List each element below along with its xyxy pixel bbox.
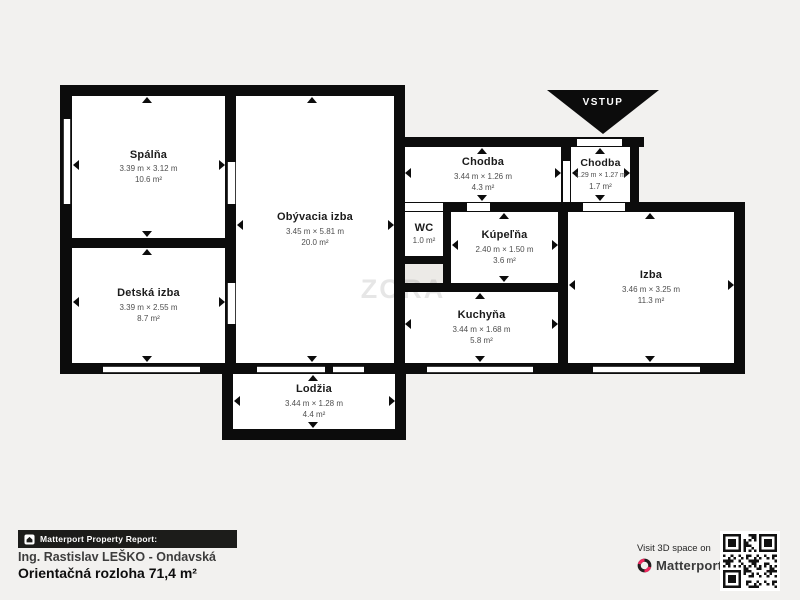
room-dimensions: 3.46 m × 3.25 m <box>622 285 680 295</box>
wall-segment <box>558 202 568 374</box>
wall-segment <box>225 85 236 374</box>
room-area: 1.0 m² <box>413 236 436 246</box>
measure-arrow <box>388 220 394 230</box>
measure-arrow <box>475 293 485 299</box>
measure-arrow <box>234 396 240 406</box>
agent-name: Ing. Rastislav LEŠKO - Ondavská <box>18 550 216 564</box>
room-wc: WC1.0 m² <box>405 212 443 256</box>
measure-arrow <box>477 195 487 201</box>
wall-segment <box>734 202 745 374</box>
measure-arrow <box>595 148 605 154</box>
room-name: Chodba <box>575 157 626 170</box>
measure-arrow <box>219 297 225 307</box>
room-chodba-2: Chodba1.29 m × 1.27 m1.7 m² <box>571 147 630 202</box>
entrance-arrow: VSTUP <box>547 90 659 134</box>
window <box>333 366 364 373</box>
room-area: 11.3 m² <box>622 296 680 306</box>
measure-arrow <box>477 148 487 154</box>
room-dimensions: 3.44 m × 1.26 m <box>454 172 512 182</box>
measure-arrow <box>307 356 317 362</box>
matterport-report-bar: Matterport Property Report: <box>18 530 237 548</box>
measure-arrow <box>499 213 509 219</box>
total-area: Orientačná rozloha 71,4 m² <box>18 565 197 581</box>
door-opening-entrance <box>577 139 622 146</box>
room-name: Detská izba <box>117 287 180 301</box>
house-icon <box>24 534 35 545</box>
room-name: Lodžia <box>285 383 343 397</box>
window <box>427 366 533 373</box>
wall-segment <box>394 283 568 292</box>
wall-segment <box>443 202 451 292</box>
room-name: WC <box>413 222 436 236</box>
wall-segment <box>60 238 236 248</box>
room-dimensions: 3.45 m × 5.81 m <box>277 227 353 237</box>
measure-arrow <box>552 240 558 250</box>
room-dimensions: 1.29 m × 1.27 m <box>575 172 626 181</box>
measure-arrow <box>499 276 509 282</box>
matterport-wordmark: Matterport <box>656 558 722 573</box>
visit-3d-block: Visit 3D space on Matterport <box>637 543 722 573</box>
measure-arrow <box>452 240 458 250</box>
room-izba: Izba3.46 m × 3.25 m11.3 m² <box>568 212 734 363</box>
door-opening <box>405 203 443 211</box>
room-name: Spálňa <box>119 149 177 163</box>
room-dimensions: 3.44 m × 1.68 m <box>452 325 510 335</box>
measure-arrow <box>645 213 655 219</box>
room-name: Kuchyňa <box>452 309 510 323</box>
wall-segment <box>222 363 233 440</box>
window <box>227 283 236 324</box>
qr-code <box>720 531 780 591</box>
window <box>103 366 200 373</box>
measure-arrow <box>237 220 243 230</box>
measure-arrow <box>142 231 152 237</box>
room-area: 20.0 m² <box>277 238 353 248</box>
floor-plan-page: Spálňa3.39 m × 3.12 m10.6 m² Detská izba… <box>0 0 800 600</box>
room-area: 4.4 m² <box>285 410 343 420</box>
measure-arrow <box>73 297 79 307</box>
window <box>257 366 325 373</box>
door-opening <box>563 161 570 202</box>
room-area: 5.8 m² <box>452 336 510 346</box>
room-obyvacia-izba: Obývacia izba3.45 m × 5.81 m20.0 m² <box>236 96 394 363</box>
door-opening <box>583 203 625 211</box>
window <box>593 366 700 373</box>
measure-arrow <box>308 375 318 381</box>
room-name: Kúpeľňa <box>475 229 533 243</box>
measure-arrow <box>645 356 655 362</box>
measure-arrow <box>552 319 558 329</box>
room-kupelna: Kúpeľňa2.40 m × 1.50 m3.6 m² <box>451 212 558 283</box>
room-area: 4.3 m² <box>454 183 512 193</box>
measure-arrow <box>728 280 734 290</box>
measure-arrow <box>595 195 605 201</box>
measure-arrow <box>142 249 152 255</box>
entrance-label: VSTUP <box>583 97 624 108</box>
room-dimensions: 2.40 m × 1.50 m <box>475 245 533 255</box>
room-area: 1.7 m² <box>575 182 626 192</box>
room-area: 8.7 m² <box>117 314 180 324</box>
matterport-logo-icon <box>637 558 652 573</box>
measure-arrow <box>389 396 395 406</box>
room-dimensions: 3.39 m × 2.55 m <box>117 303 180 313</box>
room-name: Izba <box>622 269 680 283</box>
room-chodba-1: Chodba3.44 m × 1.26 m4.3 m² <box>405 147 561 202</box>
wall-segment <box>222 429 406 440</box>
window <box>63 119 71 204</box>
measure-arrow <box>555 168 561 178</box>
room-name: Obývacia izba <box>277 211 353 225</box>
measure-arrow <box>405 168 411 178</box>
measure-arrow <box>475 356 485 362</box>
measure-arrow <box>73 160 79 170</box>
room-area: 10.6 m² <box>119 175 177 185</box>
measure-arrow <box>142 97 152 103</box>
wall-segment <box>395 363 406 440</box>
window <box>227 162 236 204</box>
wall-segment <box>630 137 639 212</box>
room-detska-izba: Detská izba3.39 m × 2.55 m8.7 m² <box>72 248 225 363</box>
wall-segment <box>394 85 405 374</box>
door-opening <box>467 203 490 211</box>
report-badge-label: Matterport Property Report: <box>40 534 157 544</box>
measure-arrow <box>142 356 152 362</box>
room-lodzia: Lodžia3.44 m × 1.28 m4.4 m² <box>233 374 395 429</box>
measure-arrow <box>405 319 411 329</box>
measure-arrow <box>219 160 225 170</box>
measure-arrow <box>307 97 317 103</box>
measure-arrow <box>569 280 575 290</box>
measure-arrow <box>308 422 318 428</box>
room-spalna: Spálňa3.39 m × 3.12 m10.6 m² <box>72 96 225 238</box>
visit-3d-text: Visit 3D space on <box>637 543 722 554</box>
room-area: 3.6 m² <box>475 256 533 266</box>
room-dimensions: 3.39 m × 3.12 m <box>119 164 177 174</box>
room-name: Chodba <box>454 156 512 170</box>
room-dimensions: 3.44 m × 1.28 m <box>285 399 343 409</box>
